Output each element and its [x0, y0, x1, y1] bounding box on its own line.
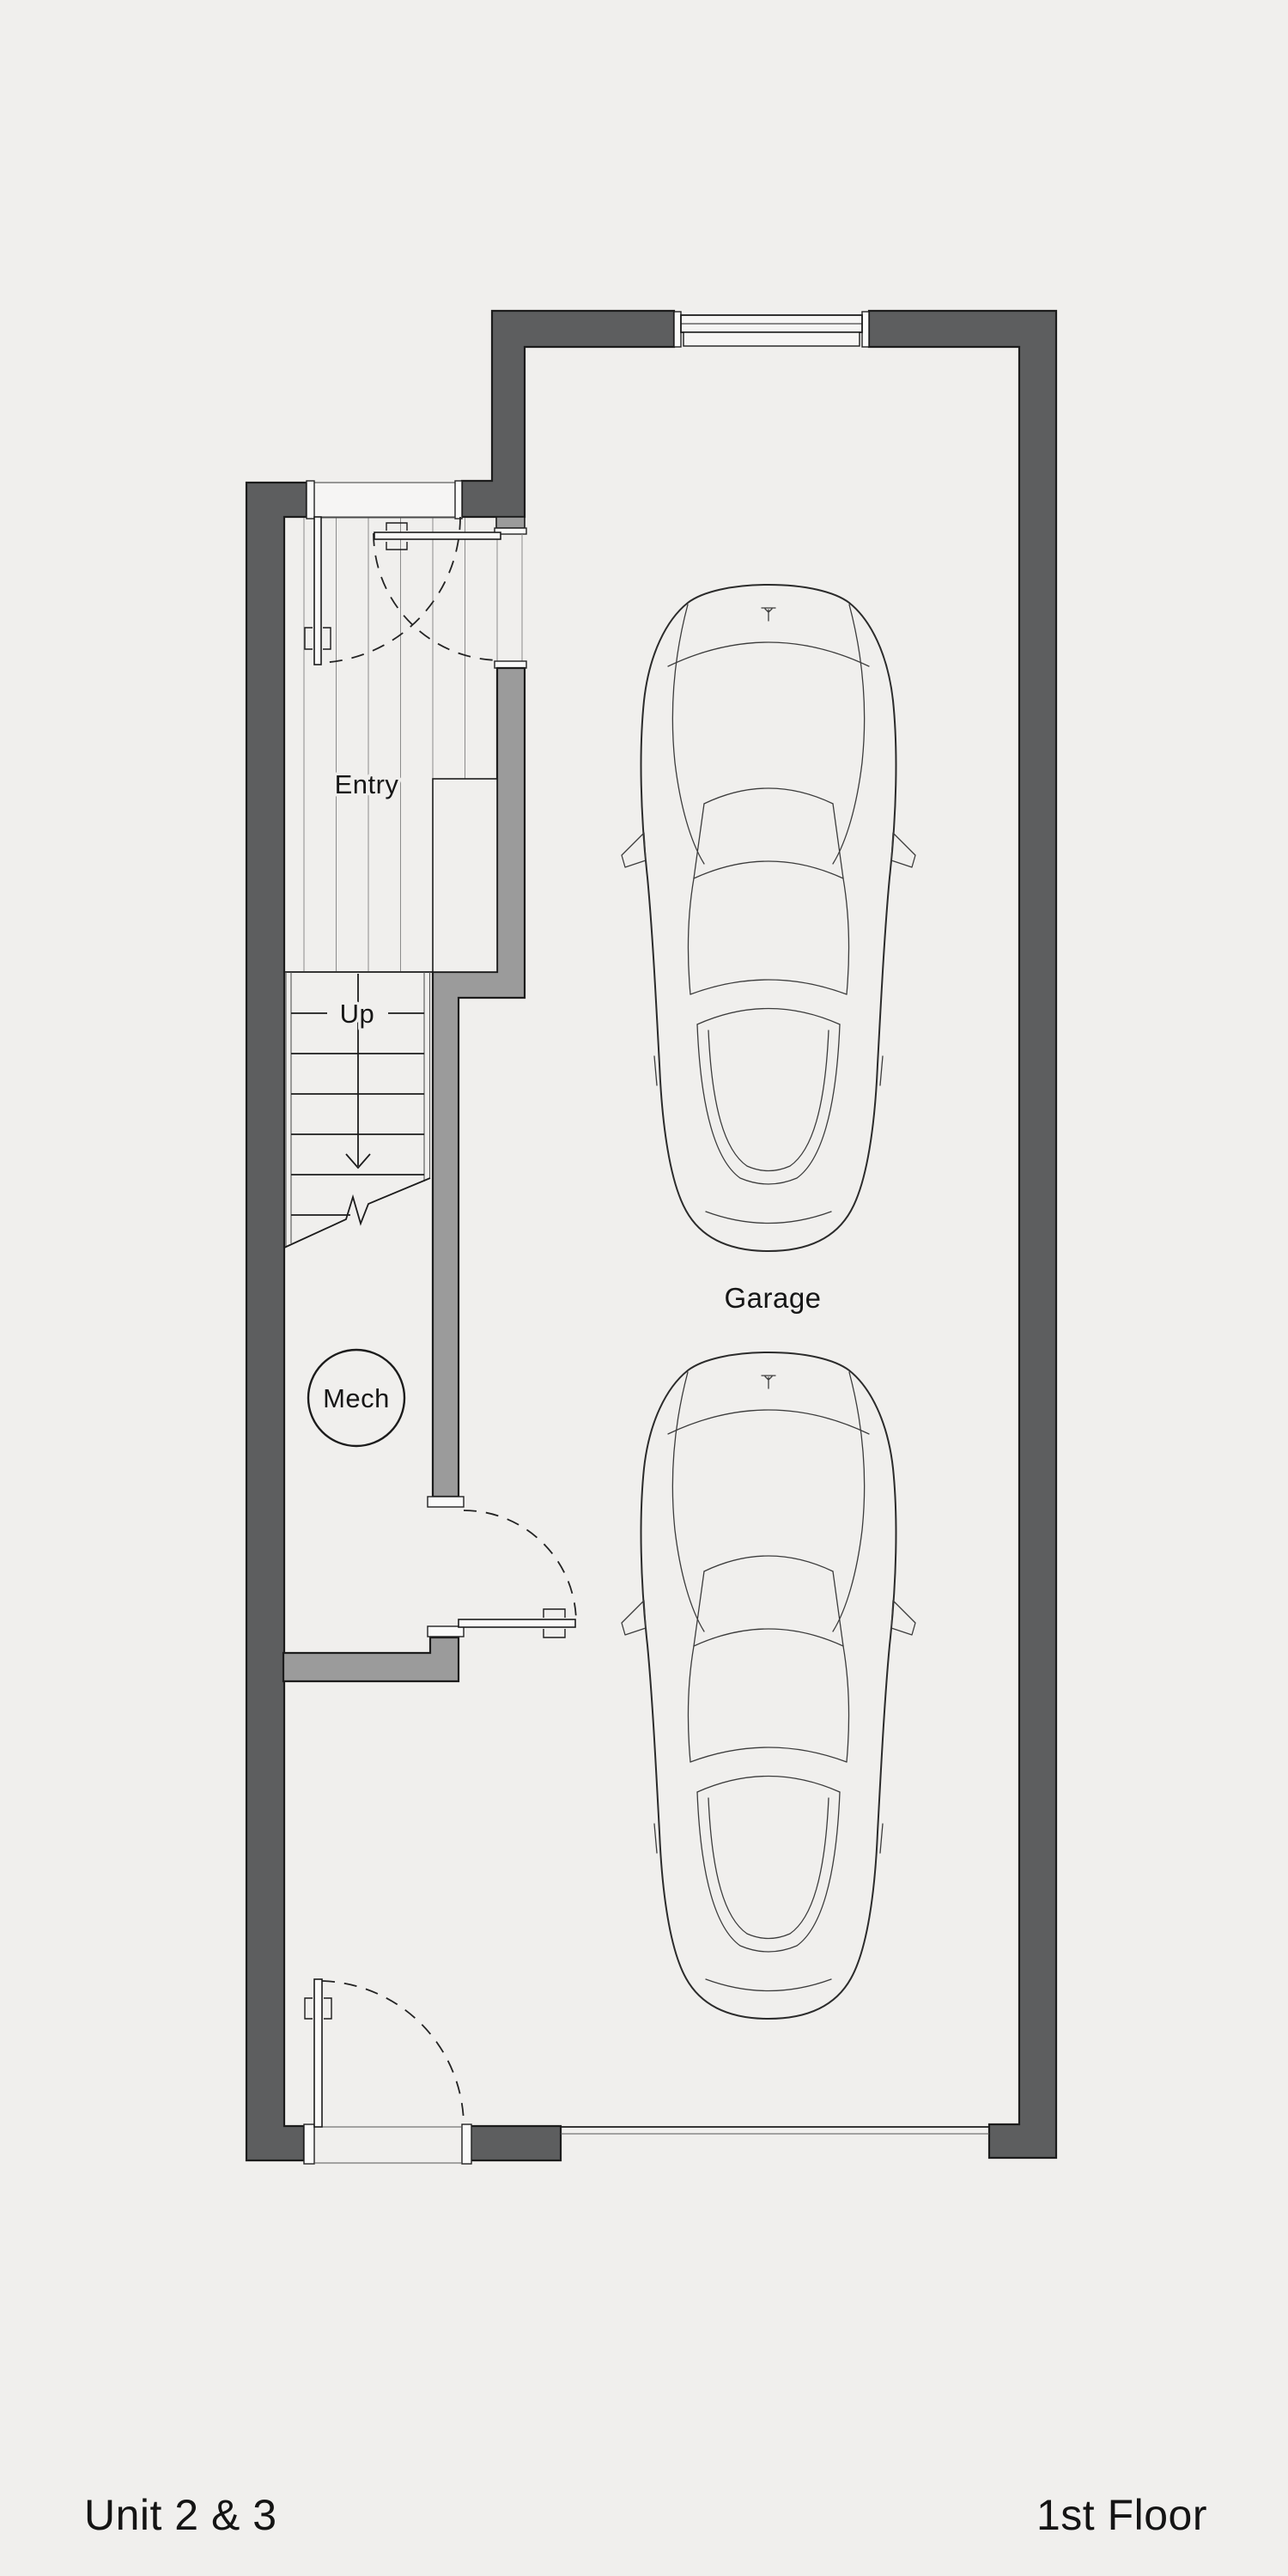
porch-garage-door [374, 517, 526, 668]
floor-plan-canvas: Entry Up Mech Garage Unit 2 & 3 1st Floo… [0, 0, 1288, 2576]
garage-door-top [674, 312, 869, 347]
room-label-mech: Mech [323, 1383, 390, 1413]
exterior-wall-right [869, 311, 1056, 2158]
garage-door-opening-bottom [561, 2127, 989, 2134]
exterior-wall-left [246, 483, 307, 2160]
floor-plan: Entry Up Mech Garage Unit 2 & 3 1st Floo… [0, 0, 1288, 2576]
room-label-garage: Garage [724, 1282, 821, 1314]
mech-room-door [428, 1497, 576, 1637]
unit-label: Unit 2 & 3 [84, 2491, 277, 2539]
room-label-entry: Entry [335, 769, 399, 799]
stair-break-line [284, 1178, 430, 1248]
interior-wall-mech-bottom [283, 1637, 459, 1681]
floor-label: 1st Floor [1036, 2491, 1207, 2539]
exterior-wall-top-left [462, 311, 674, 517]
exterior-wall-bottom-block [466, 2126, 561, 2160]
car-top-view-2 [622, 1352, 915, 2019]
stair-landing [433, 779, 497, 972]
car-top-view-1 [622, 585, 915, 1251]
room-label-up: Up [340, 999, 375, 1029]
front-entry-door [305, 481, 462, 665]
exterior-door-lower-left [304, 1979, 471, 2164]
